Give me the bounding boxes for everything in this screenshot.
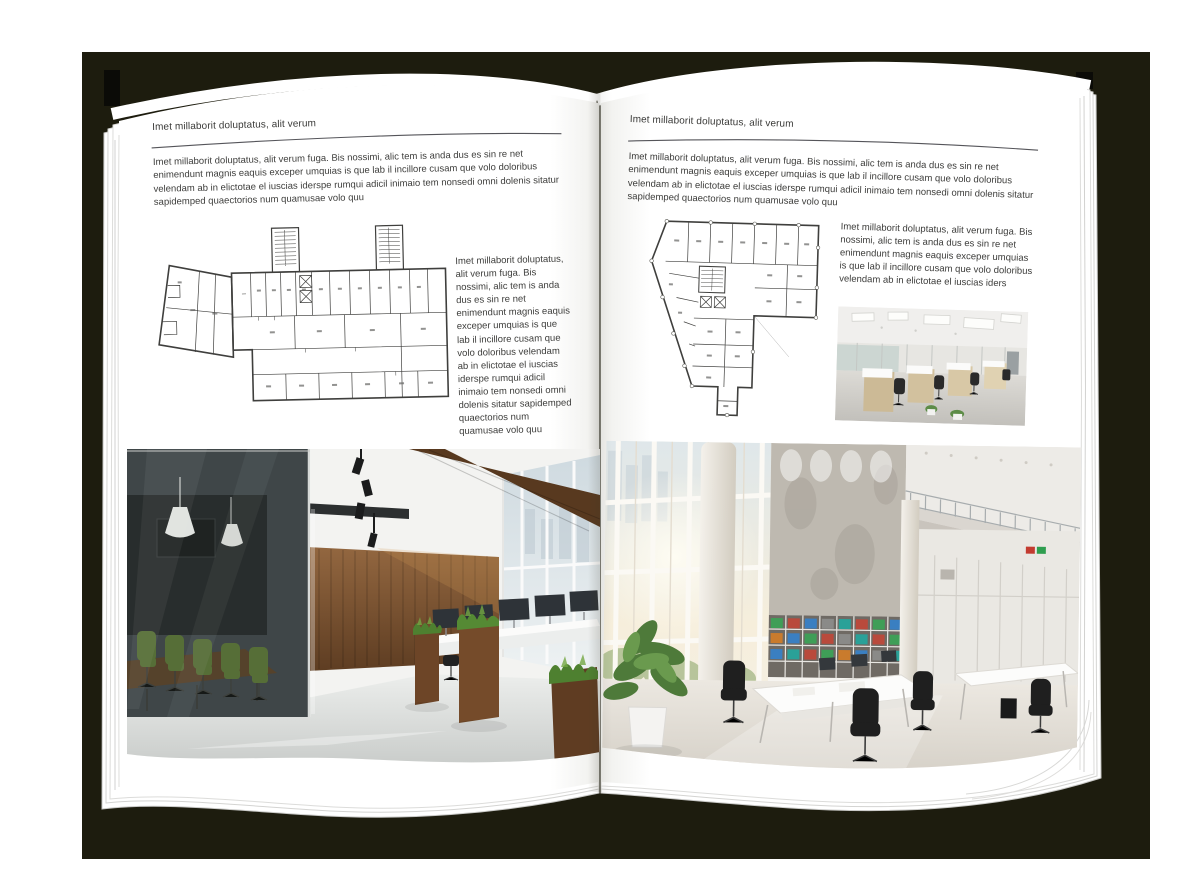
right-floorplan-drawing xyxy=(635,212,833,423)
left-side-text: Imet millaborit doluptatus, alit verum f… xyxy=(455,253,574,439)
right-side-text: Imet millaborit doluptatus, alit verum f… xyxy=(839,220,1038,291)
spine-shadow xyxy=(588,92,612,792)
magazine-mockup-canvas: Imet millaborit doluptatus, alit verum I… xyxy=(0,0,1200,891)
left-office-photo xyxy=(127,449,600,771)
left-floorplan-drawing xyxy=(152,219,451,416)
right-office-photo xyxy=(602,441,1082,780)
cover-notch-left xyxy=(104,70,120,106)
left-intro-paragraph: Imet millaborit doluptatus, alit verum f… xyxy=(153,147,564,210)
right-small-office-photo xyxy=(835,306,1028,426)
